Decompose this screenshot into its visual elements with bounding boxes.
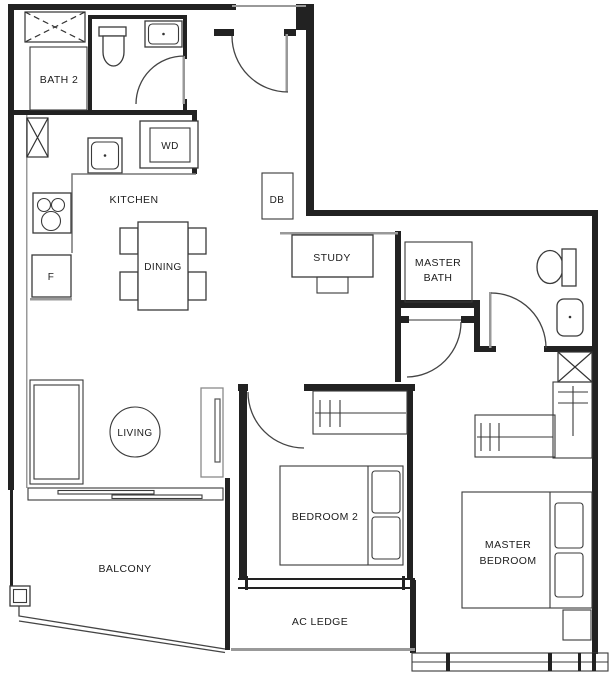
pillow	[555, 503, 583, 548]
label-fridge: F	[48, 272, 55, 283]
label-living: LIVING	[117, 428, 152, 439]
cooktop-icon-shape	[33, 193, 71, 233]
walls-shape	[88, 15, 92, 110]
label-master-bedroom-2: BEDROOM	[479, 555, 536, 567]
bedroom2-wardrobe	[313, 391, 407, 434]
label-db: DB	[270, 195, 285, 206]
master-wardrobe-right	[553, 382, 592, 458]
master-toilet-icon-shape	[562, 249, 576, 286]
label-balcony: BALCONY	[99, 563, 152, 575]
balcony: BALCONY	[10, 488, 225, 653]
walls-shape	[395, 231, 401, 382]
walls-shape	[304, 384, 415, 391]
master-toilet-icon	[537, 249, 576, 286]
floor-plan: BATH 2 WD	[0, 0, 615, 679]
refrigerator-icon-shape	[30, 298, 72, 301]
tv-icon	[215, 399, 220, 462]
master-wardrobe-top	[475, 415, 555, 457]
entry-door-swing-shape	[286, 34, 289, 92]
walls-shape	[474, 346, 496, 352]
walls-shape	[239, 391, 247, 580]
walls-shape	[225, 478, 230, 650]
walls-shape	[183, 15, 187, 59]
master-window-shape	[446, 653, 450, 671]
ac-ledge-shape	[231, 648, 415, 651]
dining-chair	[120, 272, 138, 300]
shaft-hatch-icon	[27, 118, 48, 157]
dining-chair	[188, 228, 206, 254]
bath2-door-swing-shape	[136, 56, 184, 104]
master-wardrobe-top-shape	[475, 415, 555, 457]
bedroom2-door-swing	[248, 392, 304, 448]
bath2-sink-icon-shape	[162, 33, 165, 36]
bath2-door-swing	[136, 56, 185, 104]
walls-shape	[88, 15, 187, 19]
master-bath: MASTER BATH	[405, 242, 583, 377]
master-toilet-icon-shape	[537, 251, 563, 284]
walls-shape	[238, 384, 248, 391]
label-study: STUDY	[313, 252, 351, 264]
master-window	[412, 653, 608, 671]
kitchen-sink-icon	[88, 138, 122, 173]
master-wardrobe-top-shape	[477, 423, 553, 451]
label-dining: DINING	[144, 262, 181, 273]
bath2-sink-icon	[145, 21, 182, 47]
walls-shape	[232, 5, 306, 7]
bedroom2-window-shape	[238, 587, 415, 589]
label-kitchen: KITCHEN	[110, 194, 159, 206]
refrigerator-icon: F	[30, 255, 72, 301]
master-bedroom-door-swing	[407, 319, 461, 377]
balcony-shape	[10, 488, 13, 588]
label-bedroom2: BEDROOM 2	[292, 511, 359, 523]
walls-shape	[407, 391, 413, 580]
sliding-door-icon-shape	[58, 491, 154, 495]
pillow	[372, 471, 400, 513]
sofa	[30, 380, 83, 484]
pillow	[555, 553, 583, 597]
label-master-bath-1: MASTER	[415, 257, 461, 269]
label-bath2: BATH 2	[40, 74, 78, 86]
dining-chair	[120, 228, 138, 254]
entry-door-swing	[232, 34, 288, 92]
master-window-shape	[578, 653, 581, 671]
master-window-shape	[592, 653, 596, 671]
bedroom2-wardrobe-shape	[315, 400, 406, 427]
sliding-door-icon-shape	[112, 495, 202, 499]
bedroom2-window-shape	[402, 576, 405, 590]
master-sink-icon	[557, 299, 583, 336]
bath2-toilet-icon	[99, 27, 126, 66]
walls-shape	[474, 300, 480, 352]
label-ac-ledge: AC LEDGE	[292, 616, 348, 628]
shaft-hatch-icon	[25, 12, 85, 42]
bath2-room: BATH 2	[25, 12, 185, 110]
master-bedroom-door-swing-shape	[409, 319, 461, 321]
entry-door-swing-shape	[232, 36, 288, 92]
walls-shape	[395, 316, 409, 323]
bedside-table	[563, 610, 591, 640]
walls-shape	[544, 346, 598, 352]
walls-shape	[8, 4, 14, 490]
shaft-hatch-icon-shape	[25, 12, 85, 42]
label-master-bath-2: BATH	[424, 272, 453, 284]
walls-shape	[214, 29, 234, 36]
shaft-hatch-icon-shape	[27, 118, 48, 157]
walls-shape	[306, 4, 314, 212]
db-box: DB	[262, 173, 293, 219]
entry: DB	[232, 34, 293, 219]
dining-area: DINING	[120, 222, 206, 310]
tv-console	[201, 388, 223, 477]
ac-ledge: AC LEDGE	[231, 616, 415, 651]
walls-shape	[592, 210, 598, 654]
cooktop-icon	[33, 193, 71, 233]
bath2-door-swing-shape	[183, 56, 186, 104]
master-window-shape	[548, 653, 552, 671]
kitchen-sink-icon-shape	[104, 154, 107, 157]
living-area: LIVING	[30, 380, 223, 484]
master-bath-door-swing	[489, 292, 546, 348]
sofa-shape	[34, 385, 79, 479]
washer-dryer-icon: WD	[140, 121, 198, 168]
study-chair	[317, 277, 348, 293]
bedroom2-window	[238, 576, 415, 590]
walls-shape	[8, 110, 197, 115]
walls-shape	[410, 580, 416, 653]
bath2-toilet-icon-shape	[99, 27, 126, 36]
sofa-shape	[30, 380, 83, 484]
label-master-bedroom-1: MASTER	[485, 539, 531, 551]
bedroom2: BEDROOM 2	[238, 391, 415, 590]
walls-shape	[306, 210, 598, 216]
floor-plan-drawing: BATH 2 WD	[0, 0, 615, 679]
bedroom2-window-shape	[238, 578, 415, 580]
label-wd: WD	[161, 141, 178, 152]
study-bulkhead	[280, 232, 398, 235]
pillow	[372, 517, 400, 559]
master-bedroom-door-swing-shape	[407, 322, 461, 377]
balcony-column	[10, 586, 30, 606]
master-bath-door-swing-shape	[491, 293, 546, 348]
bedroom2-window-shape	[245, 576, 248, 590]
walls-shape	[26, 115, 28, 488]
dining-chair	[188, 272, 206, 300]
master-bath-door-swing-shape	[489, 292, 492, 348]
shaft-hatch-icon	[558, 352, 592, 382]
master-wardrobe-right-shape	[558, 386, 588, 436]
sliding-door-icon	[28, 488, 223, 500]
bath2-toilet-icon-shape	[103, 36, 124, 66]
bedroom2-door-swing-shape	[248, 392, 304, 448]
walls-shape	[401, 300, 480, 308]
shaft-hatch-icon-shape	[558, 352, 592, 382]
study-nook: STUDY	[292, 235, 373, 293]
balcony-railing	[19, 606, 225, 653]
walls-shape	[8, 4, 236, 10]
master-sink-icon-shape	[569, 316, 572, 319]
walls-shape	[461, 316, 480, 323]
master-bedroom: MASTER BEDROOM	[412, 352, 608, 671]
